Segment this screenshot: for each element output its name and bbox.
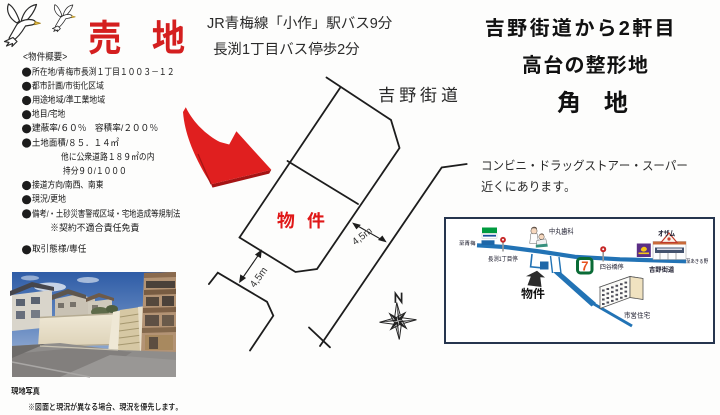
svg-text:7: 7 (581, 259, 588, 274)
